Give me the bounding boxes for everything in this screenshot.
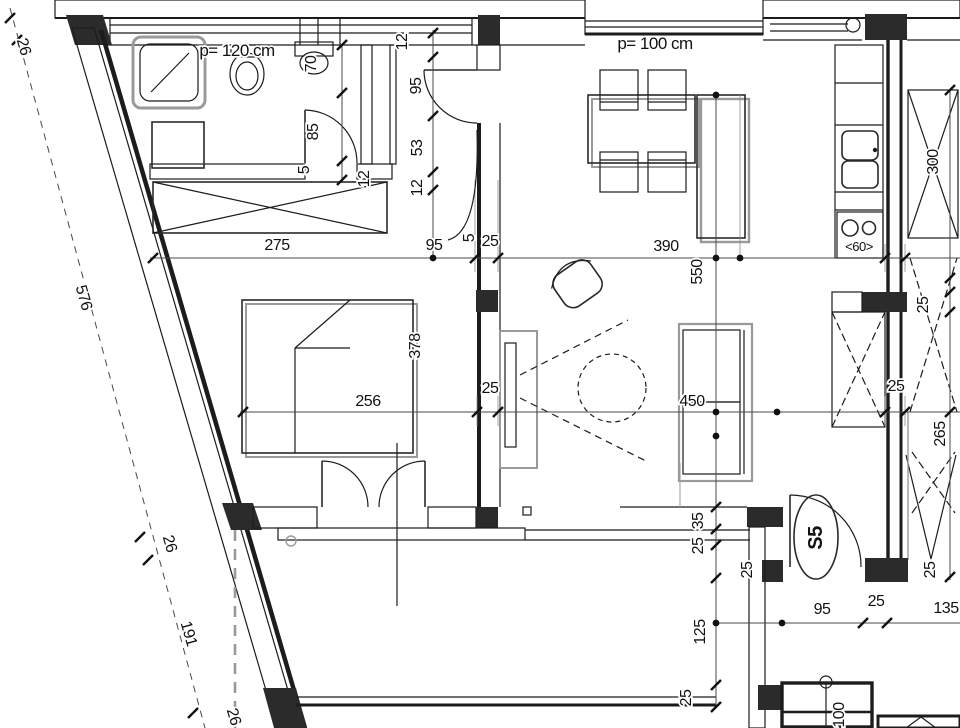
dim-label: 70 — [303, 55, 320, 72]
wall-inner-face — [101, 30, 305, 728]
apartment-label: S5 — [805, 526, 827, 550]
dim-label: 25 — [915, 296, 932, 313]
dim-label: 125 — [692, 619, 709, 645]
dim-label: 85 — [305, 123, 322, 140]
dim-label: 12 — [394, 33, 411, 50]
floor-plan-canvas: p= 120 cm p= 100 cm 70 85 5 12 12 95 53 … — [0, 0, 960, 728]
hatched-band-top-right — [763, 0, 960, 18]
bed — [242, 300, 413, 453]
dim-label: 26 — [223, 706, 244, 727]
dim-label: 12 — [409, 179, 426, 196]
diagonal-dim-line — [10, 8, 205, 728]
lower-fixture-box — [878, 716, 960, 728]
wall-block — [862, 292, 907, 312]
dim-label: 378 — [407, 333, 424, 359]
dim-label: 12 — [356, 170, 373, 187]
window-top-left — [110, 18, 472, 45]
stair-direction-arrow — [906, 452, 956, 559]
column-entry — [478, 15, 500, 45]
dim-label: 26 — [159, 533, 180, 554]
drain-circle — [286, 536, 296, 546]
dining-chair — [648, 70, 686, 110]
dining-table — [588, 95, 695, 163]
tv-cabinet — [500, 331, 537, 468]
washing-machine — [152, 122, 204, 168]
lower-unit — [758, 676, 960, 728]
dim-label: 26 — [13, 36, 34, 57]
corridor-wall — [390, 45, 396, 164]
dim-label: 95 — [408, 77, 425, 94]
living-dining — [500, 70, 752, 481]
lower-room-box — [782, 676, 872, 727]
kitchen-island-shadow — [701, 99, 749, 242]
wall-block — [476, 290, 498, 312]
dim-label: 550 — [689, 259, 706, 285]
dining-chair — [648, 152, 686, 192]
wall-block — [476, 507, 498, 528]
dim-label: 450 — [679, 393, 705, 410]
bathroom-south-wall-left — [150, 164, 305, 179]
labels: p= 120 cm p= 100 cm 70 85 5 12 12 95 53 … — [13, 33, 959, 728]
dim-label: 95 — [814, 601, 831, 618]
shower — [133, 37, 205, 108]
bed-shadow — [246, 304, 417, 457]
floor-plan-svg: p= 120 cm p= 100 cm 70 85 5 12 12 95 53 … — [0, 0, 960, 728]
dim-label: 25 — [482, 233, 499, 250]
dim-label: 390 — [653, 238, 679, 255]
dim-label: 576 — [72, 283, 95, 312]
duct-circle — [846, 18, 860, 32]
wall-block — [865, 558, 908, 582]
column-kitchen — [865, 14, 907, 40]
dim-label: 53 — [409, 139, 426, 156]
wall-block-bottom — [263, 688, 307, 728]
wardrobe — [153, 182, 387, 233]
dim-label: 25 — [888, 378, 905, 395]
dim-label: 25 — [922, 561, 939, 578]
armchair — [545, 252, 608, 313]
dim-label: 25 — [690, 537, 707, 554]
dim-label: 25 — [868, 593, 885, 610]
dim-label: 100 — [831, 702, 848, 728]
bedroom — [242, 300, 531, 606]
parapet-note-right: p= 100 cm — [617, 34, 693, 53]
window-dining — [585, 21, 763, 34]
bathroom-east-wall — [361, 45, 372, 164]
dim-label: 275 — [264, 237, 290, 254]
stove-width-label: <60> — [845, 239, 873, 254]
wall-above-entry-door — [477, 45, 500, 70]
balcony — [235, 528, 750, 728]
dim-label: 191 — [177, 619, 200, 648]
parapet-hatch — [278, 528, 525, 540]
dim-label: 25 — [739, 561, 756, 578]
dim-label: 25 — [678, 689, 695, 706]
parapet-note-left: p= 120 cm — [199, 41, 275, 60]
hall — [153, 45, 500, 528]
hatched-band-top-left — [55, 0, 585, 18]
dining-chair — [600, 152, 638, 192]
dim-label: 265 — [932, 421, 949, 447]
dim-label: 256 — [355, 393, 381, 410]
wall-block — [758, 685, 783, 710]
dining-chair — [600, 70, 638, 110]
kitchen-sink — [842, 131, 878, 188]
wall-piece — [832, 292, 862, 312]
entry-door — [424, 70, 477, 123]
dim-label: 135 — [933, 600, 959, 617]
table-shadow — [592, 99, 699, 167]
dim-label: 5 — [461, 233, 478, 242]
kitchen-island — [697, 95, 745, 238]
dim-label: 300 — [925, 149, 942, 175]
shaft-cross-box — [832, 312, 885, 427]
window-kitchen — [763, 24, 960, 40]
kitchen — [832, 40, 907, 558]
wall-block — [747, 507, 783, 527]
dim-label: 5 — [296, 165, 313, 174]
dim-label: 35 — [690, 512, 707, 529]
dim-label: 95 — [426, 237, 443, 254]
dim-label: 25 — [482, 380, 499, 397]
dimension-lines — [5, 8, 960, 728]
